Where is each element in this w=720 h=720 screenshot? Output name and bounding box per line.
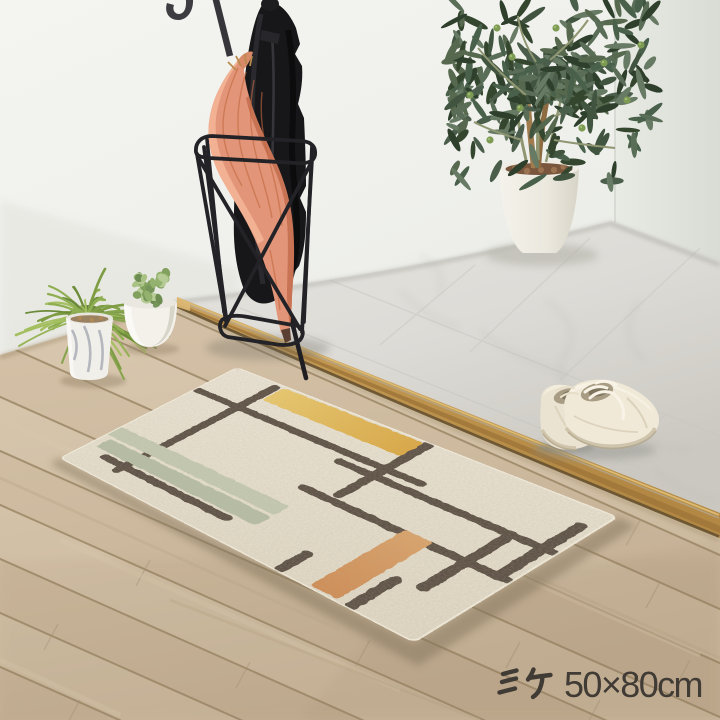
svg-text:50×80cm: 50×80cm <box>564 664 702 705</box>
